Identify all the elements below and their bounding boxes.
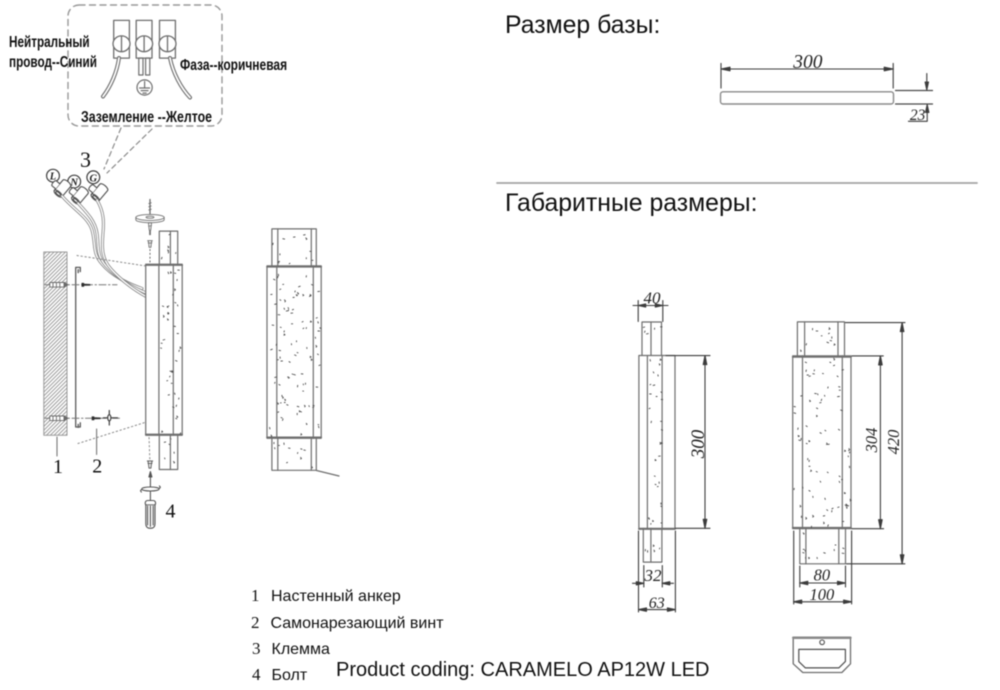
svg-text:23: 23: [910, 107, 926, 124]
svg-text:32: 32: [644, 566, 663, 585]
svg-text:40: 40: [644, 289, 662, 308]
svg-text:L: L: [49, 172, 56, 183]
svg-text:300: 300: [688, 429, 709, 459]
svg-text:3: 3: [80, 147, 91, 172]
svg-text:2: 2: [92, 456, 102, 478]
svg-text:63: 63: [649, 595, 665, 612]
svg-text:80: 80: [814, 566, 831, 585]
svg-text:100: 100: [810, 585, 836, 604]
svg-text:420: 420: [884, 429, 903, 455]
svg-text:304: 304: [862, 428, 881, 454]
svg-text:G: G: [90, 173, 98, 184]
svg-text:N: N: [69, 178, 78, 189]
svg-text:1: 1: [53, 456, 63, 478]
svg-text:300: 300: [792, 52, 823, 73]
svg-text:4: 4: [166, 501, 176, 523]
